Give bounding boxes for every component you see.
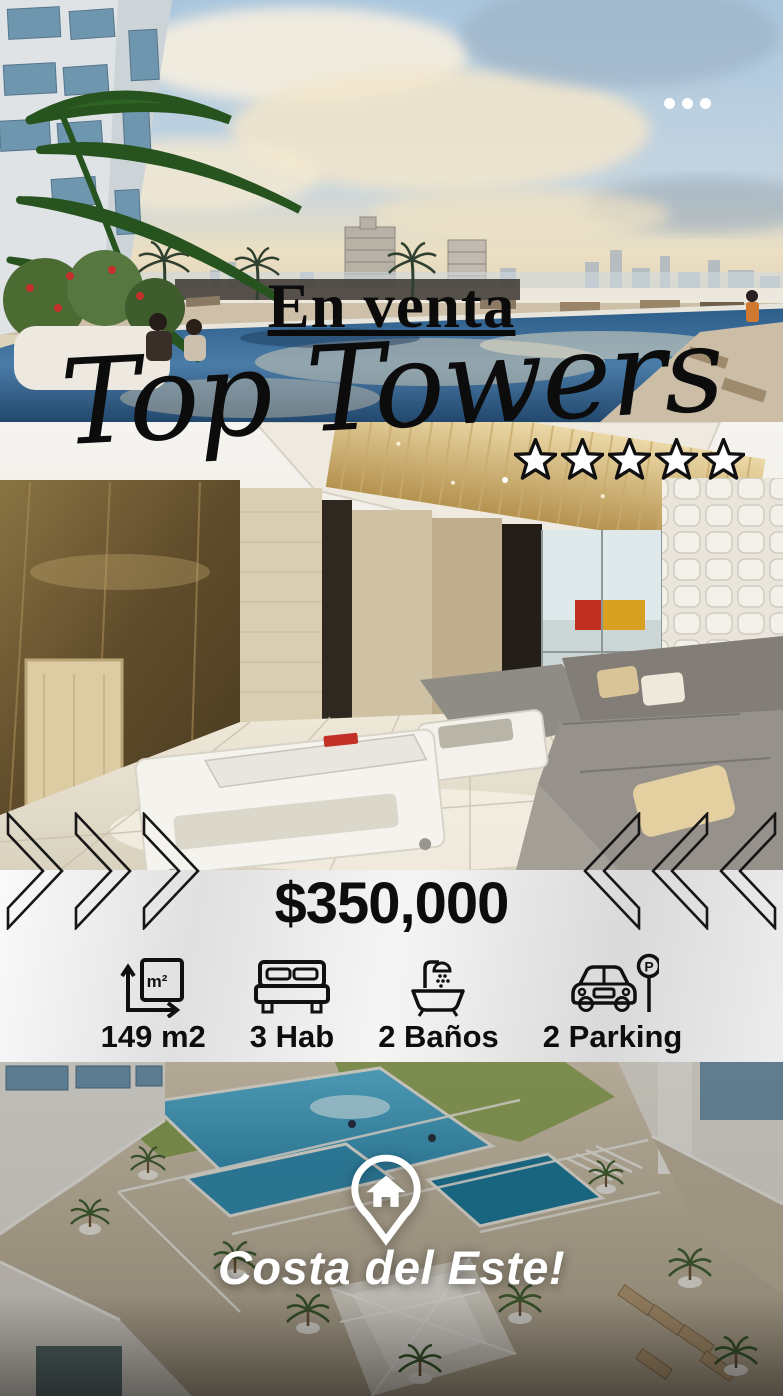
feature-area: m² 149 m2 <box>101 950 206 1055</box>
dot <box>682 98 693 109</box>
dot <box>700 98 711 109</box>
bedrooms-label: 3 Hab <box>250 1019 334 1055</box>
feature-bedrooms: 3 Hab <box>250 950 334 1055</box>
parking-label: 2 Parking <box>543 1019 683 1055</box>
area-icon: m² <box>118 950 188 1018</box>
parking-icon: P <box>567 950 659 1018</box>
lobby-interior-photo <box>0 422 783 870</box>
star-icon <box>514 438 557 480</box>
bed-icon <box>254 950 330 1018</box>
star-icon <box>608 438 651 480</box>
bathrooms-label: 2 Baños <box>378 1019 499 1055</box>
feature-parking: P 2 Parking <box>543 950 683 1055</box>
home-location-pin-icon <box>347 1152 425 1250</box>
lobby-interior-art <box>0 422 783 870</box>
star-icon <box>561 438 604 480</box>
overflow-menu-icon[interactable] <box>664 98 711 109</box>
svg-text:m²: m² <box>147 972 168 991</box>
bath-icon <box>405 950 471 1018</box>
location-label: Costa del Este! <box>0 1240 783 1295</box>
area-label: 149 m2 <box>101 1019 206 1055</box>
star-icon <box>655 438 698 480</box>
chevrons-right-decor <box>6 812 210 930</box>
chevrons-left-decor <box>573 812 777 930</box>
post-canvas: $350,000 m² 149 m2 <box>0 0 783 1396</box>
star-icon <box>702 438 745 480</box>
features-row: m² 149 m2 <box>0 950 783 1055</box>
rating-stars <box>514 438 745 480</box>
svg-text:P: P <box>644 959 653 975</box>
feature-bathrooms: 2 Baños <box>378 950 499 1055</box>
dot <box>664 98 675 109</box>
